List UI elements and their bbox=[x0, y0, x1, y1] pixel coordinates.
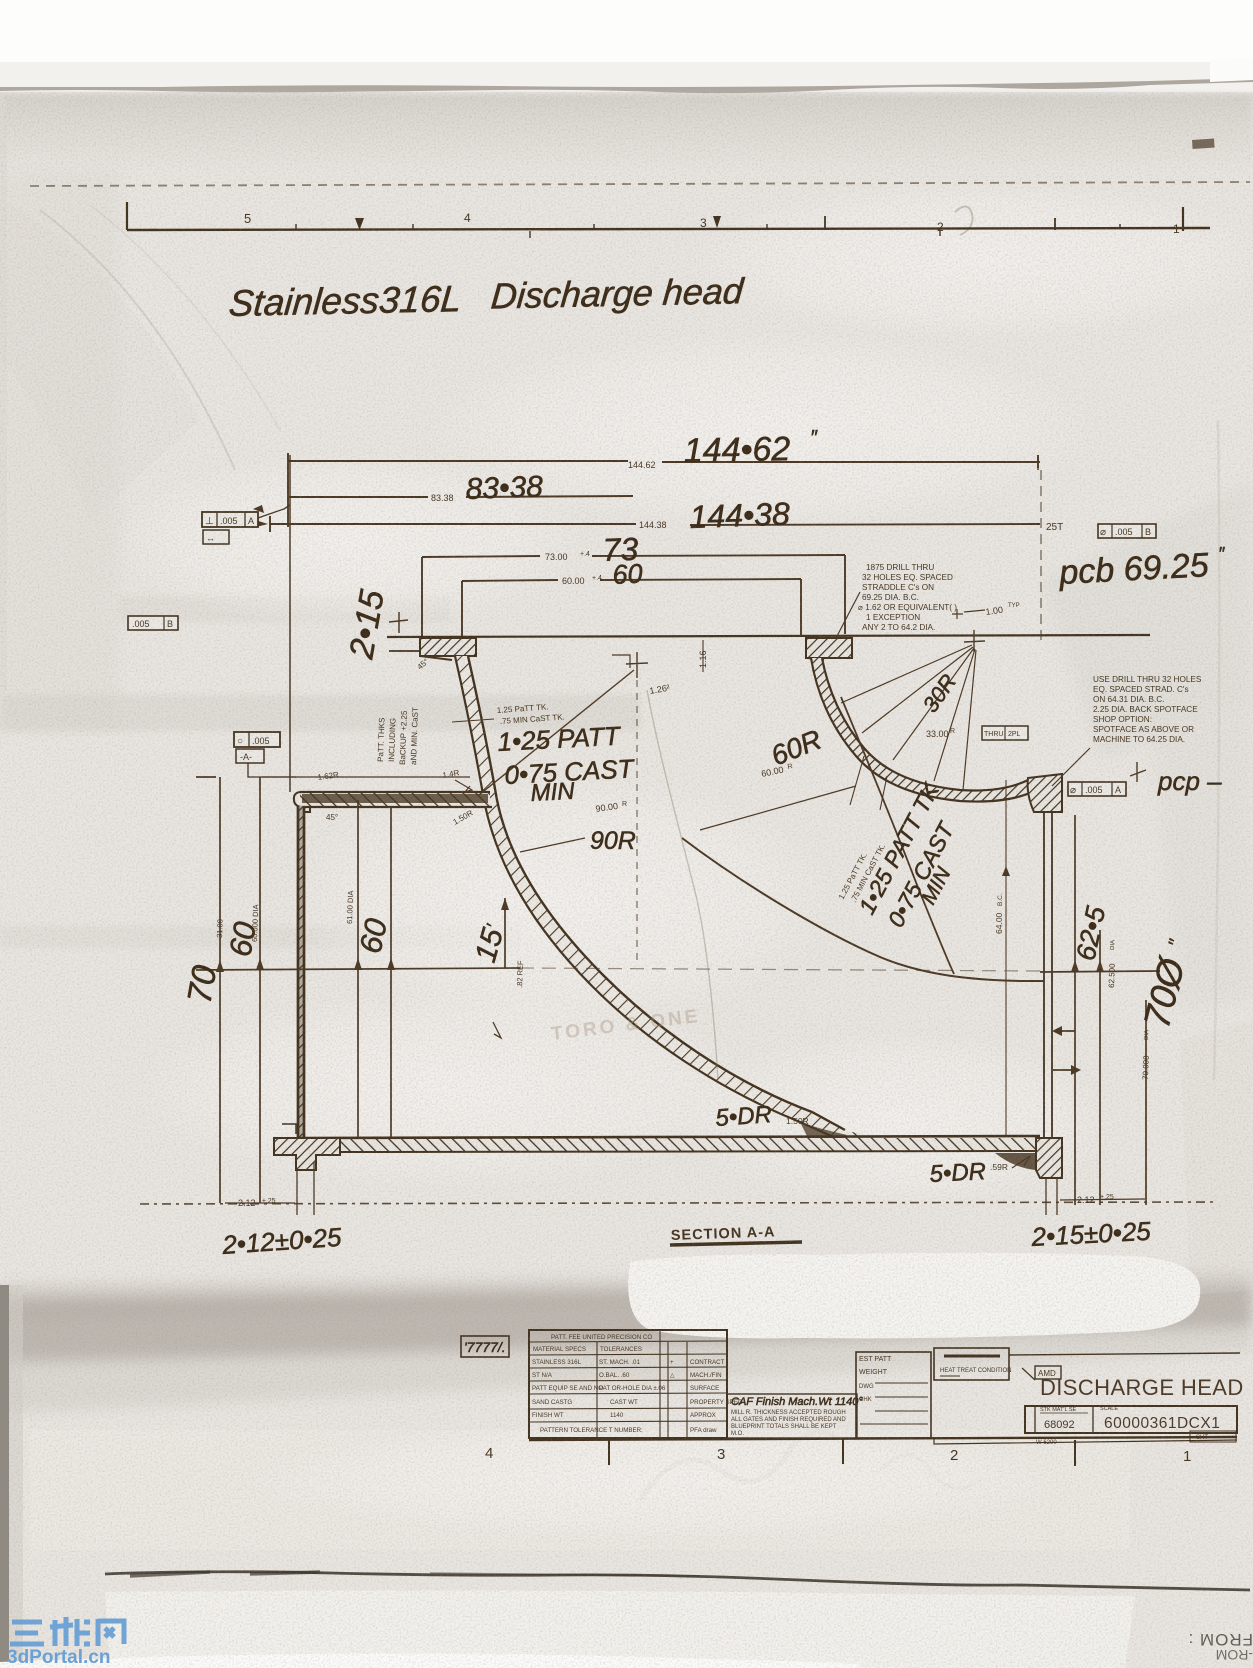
svg-text:3dPortal.cn: 3dPortal.cn bbox=[7, 1647, 110, 1668]
svg-text:○: ○ bbox=[237, 736, 243, 747]
svg-text:144•62: 144•62 bbox=[683, 430, 790, 470]
svg-text:33.00: 33.00 bbox=[926, 729, 949, 739]
svg-text:PATTERN TOLERANCE T NUMBER:: PATTERN TOLERANCE T NUMBER: bbox=[540, 1427, 643, 1434]
svg-text:HEAT TREAT CONDITION: HEAT TREAT CONDITION bbox=[940, 1368, 1011, 1374]
svg-text:3: 3 bbox=[717, 1446, 725, 1463]
svg-text:M.O.: M.O. bbox=[731, 1431, 744, 1437]
svg-text:2.12: 2.12 bbox=[238, 1198, 256, 1208]
svg-text:ON 64.31 DIA. B.C.: ON 64.31 DIA. B.C. bbox=[1093, 695, 1164, 704]
svg-text:ANY 2 TO 64.2 DIA.: ANY 2 TO 64.2 DIA. bbox=[862, 623, 935, 632]
svg-text:2.12: 2.12 bbox=[1077, 1195, 1095, 1205]
svg-text:.59R: .59R bbox=[990, 1162, 1008, 1172]
svg-text:SPOTFACE AS ABOVE OR: SPOTFACE AS ABOVE OR bbox=[1093, 725, 1194, 734]
svg-text:USE DRILL THRU 32 HOLES: USE DRILL THRU 32 HOLES bbox=[1093, 675, 1202, 684]
svg-text:+.4: +.4 bbox=[580, 551, 590, 558]
svg-text:-ROM: -ROM bbox=[1216, 1647, 1253, 1663]
svg-text:'7777/.: '7777/. bbox=[464, 1339, 506, 1355]
svg-text:144.38: 144.38 bbox=[639, 520, 667, 530]
svg-text:ALL GATES AND FINISH REQUIRED: ALL GATES AND FINISH REQUIRED AND bbox=[731, 1417, 846, 1423]
svg-text:60: 60 bbox=[353, 915, 394, 956]
svg-text:62.500: 62.500 bbox=[1107, 963, 1117, 988]
svg-text:60.00: 60.00 bbox=[562, 576, 585, 586]
svg-text:64.00: 64.00 bbox=[994, 912, 1004, 934]
svg-text:A: A bbox=[248, 516, 254, 526]
svg-text:3: 3 bbox=[700, 216, 707, 230]
svg-text:MACH./FIN: MACH./FIN bbox=[690, 1372, 722, 1379]
svg-text:83.38: 83.38 bbox=[431, 493, 454, 503]
svg-text:MATERIAL SPECS: MATERIAL SPECS bbox=[533, 1346, 586, 1353]
svg-text:W 6200: W 6200 bbox=[1036, 1440, 1057, 1446]
svg-text:STK MAT'L SE: STK MAT'L SE bbox=[1040, 1407, 1077, 1413]
svg-text:1 EXCEPTION: 1 EXCEPTION bbox=[866, 613, 920, 622]
svg-text:↔: ↔ bbox=[206, 533, 215, 543]
svg-text:70: 70 bbox=[180, 962, 224, 1006]
svg-text:69.25 DIA. B.C.: 69.25 DIA. B.C. bbox=[862, 593, 919, 602]
svg-text:1: 1 bbox=[1183, 1448, 1191, 1465]
svg-text:pcb 69.25: pcb 69.25 bbox=[1057, 546, 1209, 592]
svg-text:2: 2 bbox=[937, 220, 944, 234]
svg-text:PAT OR-HOLE DIA ±.06: PAT OR-HOLE DIA ±.06 bbox=[599, 1385, 666, 1392]
svg-text:.005: .005 bbox=[252, 736, 270, 746]
svg-text:EST PATT: EST PATT bbox=[859, 1356, 892, 1363]
svg-text:SCALE: SCALE bbox=[1100, 1406, 1118, 1412]
svg-text:ST N/A: ST N/A bbox=[532, 1372, 553, 1379]
svg-text:PATT EQUIP SE AND NO: PATT EQUIP SE AND NO bbox=[532, 1385, 603, 1392]
svg-text:R: R bbox=[950, 728, 955, 735]
svg-text:WEIGHT: WEIGHT bbox=[859, 1369, 888, 1376]
svg-text:A: A bbox=[1115, 785, 1121, 795]
svg-text:⌀: ⌀ bbox=[1100, 527, 1106, 538]
svg-text:TYP: TYP bbox=[1008, 603, 1020, 609]
svg-text:5•DR: 5•DR bbox=[715, 1101, 773, 1132]
svg-text:2.25 DIA. BACK SPOTFACE: 2.25 DIA. BACK SPOTFACE bbox=[1093, 705, 1198, 714]
svg-text:TOLERANCES: TOLERANCES bbox=[600, 1346, 642, 1353]
svg-text:SHOP OPTION:: SHOP OPTION: bbox=[1093, 715, 1152, 724]
svg-text:STAINLESS 316L: STAINLESS 316L bbox=[532, 1359, 582, 1366]
svg-text:61.00 DIA: 61.00 DIA bbox=[345, 890, 355, 924]
svg-text:B.C.: B.C. bbox=[997, 893, 1004, 906]
svg-text:-A-: -A- bbox=[240, 752, 252, 762]
svg-text:″: ″ bbox=[1218, 544, 1225, 564]
svg-text:4: 4 bbox=[485, 1445, 493, 1462]
svg-text:PATT. FEE UNITED PRECISION CO: PATT. FEE UNITED PRECISION CO bbox=[551, 1334, 652, 1341]
svg-text:68092: 68092 bbox=[1044, 1419, 1075, 1431]
svg-text:5: 5 bbox=[244, 211, 251, 226]
svg-text:MIN: MIN bbox=[530, 778, 576, 807]
svg-text:O.BAL. .60: O.BAL. .60 bbox=[599, 1372, 630, 1379]
svg-text:Discharge head: Discharge head bbox=[489, 270, 746, 316]
svg-text:60: 60 bbox=[612, 558, 644, 590]
svg-text:⊥: ⊥ bbox=[205, 516, 214, 527]
svg-text:FINISH WT: FINISH WT bbox=[532, 1412, 564, 1419]
svg-text:MACHINE TO 64.25 DIA.: MACHINE TO 64.25 DIA. bbox=[1093, 735, 1185, 744]
svg-text:60.000 DIA: 60.000 DIA bbox=[250, 904, 260, 942]
svg-text:1: 1 bbox=[1173, 222, 1180, 236]
svg-text:.82 REF: .82 REF bbox=[515, 960, 525, 988]
svg-text:2: 2 bbox=[950, 1447, 958, 1464]
svg-text:DIA: DIA bbox=[1144, 1030, 1150, 1040]
svg-text:MILL R. THICKNESS ACCEPTED ROU: MILL R. THICKNESS ACCEPTED ROUGH bbox=[731, 1410, 846, 1416]
svg-text:.005: .005 bbox=[1085, 785, 1103, 795]
svg-text:70.000: 70.000 bbox=[1141, 1055, 1151, 1080]
svg-text:90R: 90R bbox=[590, 827, 636, 855]
svg-text:32 HOLES EQ. SPACED: 32 HOLES EQ. SPACED bbox=[862, 573, 953, 582]
svg-text:△: △ bbox=[670, 1372, 675, 1379]
svg-text:⌀: ⌀ bbox=[1070, 785, 1076, 796]
svg-text:B: B bbox=[1145, 527, 1151, 537]
svg-text:5•DR: 5•DR bbox=[929, 1158, 987, 1188]
svg-text:DIA: DIA bbox=[1110, 940, 1116, 950]
svg-text:73.00: 73.00 bbox=[545, 552, 568, 562]
svg-text:4: 4 bbox=[464, 211, 471, 225]
svg-text:1140: 1140 bbox=[610, 1412, 624, 1419]
svg-text:ST. MACH. .01: ST. MACH. .01 bbox=[599, 1359, 640, 1366]
svg-text:CAST WT: CAST WT bbox=[610, 1399, 638, 1406]
svg-text:45°: 45° bbox=[326, 813, 338, 822]
svg-text:83•38: 83•38 bbox=[465, 470, 544, 506]
svg-text:BаCKUP +2.25: BаCKUP +2.25 bbox=[398, 710, 409, 765]
svg-text:Stainless316L: Stainless316L bbox=[227, 277, 463, 324]
svg-text:INCLUDING: INCLUDING bbox=[387, 718, 398, 762]
svg-text:⌀ 1.62 OR EQUIVALENT( ): ⌀ 1.62 OR EQUIVALENT( ) bbox=[858, 603, 957, 612]
svg-text:pcp –: pcp – bbox=[1157, 766, 1222, 796]
svg-text:PFA draw: PFA draw bbox=[690, 1427, 717, 1434]
svg-text:.005: .005 bbox=[220, 516, 238, 526]
svg-text:144.62: 144.62 bbox=[628, 460, 656, 470]
svg-text:FROM :: FROM : bbox=[1188, 1630, 1253, 1649]
svg-text:25T: 25T bbox=[1046, 522, 1063, 533]
svg-text:2•15±0•25: 2•15±0•25 bbox=[1030, 1216, 1152, 1252]
svg-text:144•38: 144•38 bbox=[689, 496, 791, 535]
svg-text:CHK: CHK bbox=[859, 1397, 872, 1403]
svg-text:±.25: ±.25 bbox=[262, 1198, 276, 1205]
svg-text:EQ. SPACED STRAD. C's: EQ. SPACED STRAD. C's bbox=[1093, 685, 1189, 694]
svg-text:R: R bbox=[622, 801, 627, 808]
svg-text:PаTT. THKS: PаTT. THKS bbox=[376, 717, 387, 762]
svg-text:60000361DCX1: 60000361DCX1 bbox=[1104, 1415, 1220, 1432]
svg-text:31.00: 31.00 bbox=[215, 919, 225, 938]
svg-text:.005: .005 bbox=[1115, 527, 1133, 537]
svg-text:B: B bbox=[167, 619, 173, 629]
svg-text:DWG: DWG bbox=[859, 1384, 874, 1390]
svg-text:.005: .005 bbox=[132, 619, 150, 629]
svg-text:+.25: +.25 bbox=[1100, 1194, 1114, 1201]
svg-text:+: + bbox=[670, 1359, 674, 1366]
svg-text:″: ″ bbox=[810, 427, 818, 449]
svg-text:APPROX: APPROX bbox=[690, 1412, 716, 1419]
svg-text:SAND CASTG: SAND CASTG bbox=[532, 1399, 572, 1406]
svg-text:2PL: 2PL bbox=[1008, 731, 1021, 738]
svg-text:BLUEPRINT TOTALS SHALL BE KEPT: BLUEPRINT TOTALS SHALL BE KEPT bbox=[731, 1424, 837, 1430]
svg-text:SHT: SHT bbox=[1196, 1435, 1208, 1441]
svg-text:CAF Finish Mach.Wt 1140°: CAF Finish Mach.Wt 1140° bbox=[731, 1396, 863, 1408]
svg-text:SURFACE: SURFACE bbox=[690, 1385, 719, 1392]
svg-text:CONTRACT: CONTRACT bbox=[690, 1359, 725, 1366]
svg-text:STRADDLE C's ON: STRADDLE C's ON bbox=[862, 583, 934, 592]
svg-text:DISCHARGE HEAD: DISCHARGE HEAD bbox=[1040, 1375, 1244, 1400]
svg-text:THRU: THRU bbox=[984, 731, 1003, 738]
svg-text:1.50R: 1.50R bbox=[786, 1116, 809, 1126]
svg-text:1875 DRILL THRU: 1875 DRILL THRU bbox=[866, 563, 934, 572]
svg-text:+.4: +.4 bbox=[592, 575, 602, 582]
